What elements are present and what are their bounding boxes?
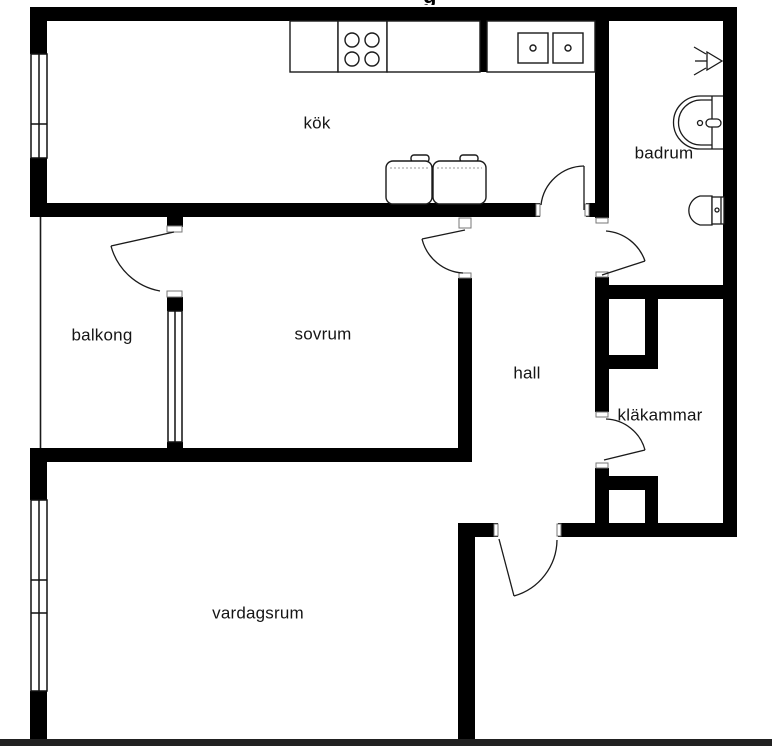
room-label-hall: hall — [513, 365, 540, 382]
wall-klakammar-left-upper — [595, 299, 609, 412]
kitchen-fixtures — [290, 21, 595, 204]
door-frames — [167, 204, 608, 536]
wall-vardagsrum-left-lower — [30, 691, 47, 740]
room-label-kok: kök — [303, 115, 330, 132]
kitchen-counter-cabinet — [290, 21, 338, 72]
bottom-edge-bar — [0, 739, 772, 746]
room-label-klakammar: kläkammar — [618, 407, 703, 424]
door-badrum — [602, 231, 645, 275]
wall-balkong-stub-mid — [167, 297, 183, 311]
bathroom-fixtures — [674, 47, 725, 225]
wall-hall-bottom — [558, 523, 737, 537]
wall-counter-separator — [480, 21, 487, 72]
wall-kok-bottom — [30, 203, 540, 217]
door-klakammar — [604, 419, 645, 460]
floorplan-drawing — [0, 0, 772, 746]
wall-badrum-left — [595, 7, 609, 218]
fridge-icon — [386, 155, 432, 204]
washbasin-icon — [674, 96, 724, 149]
wall-badrum-left-stub — [595, 277, 609, 285]
room-label-vardagsrum: vardagsrum — [212, 605, 304, 622]
room-label-balkong: balkong — [72, 327, 133, 344]
wall-alcove-top-horizontal — [609, 355, 658, 369]
wall-right-exterior — [723, 7, 737, 537]
walls — [30, 7, 737, 740]
freezer-icon — [433, 155, 486, 204]
door-kok — [541, 166, 584, 210]
window-balkong-sovrum — [168, 311, 182, 442]
door-balkong — [111, 232, 174, 291]
wall-sovrum-right — [458, 278, 472, 462]
room-label-badrum: badrum — [635, 145, 694, 162]
wall-alcove-bottom-horizontal — [609, 476, 658, 490]
wall-left-upper-a — [30, 7, 47, 54]
wall-top — [30, 7, 737, 21]
stove-four-burners-icon — [338, 21, 387, 72]
wall-badrum-bottom — [595, 285, 737, 299]
window-vardagsrum — [31, 500, 47, 691]
double-sink-icon — [487, 21, 595, 72]
door-sovrum — [422, 230, 465, 273]
shower-icon — [694, 47, 722, 75]
toilet-icon — [689, 196, 724, 225]
room-label-sovrum: sovrum — [295, 326, 352, 343]
door-vardagsrum — [499, 539, 557, 596]
wall-balkong-stub-bottom — [167, 442, 183, 448]
kitchen-counter-long — [387, 21, 480, 72]
window-kok — [31, 54, 47, 158]
windows — [31, 54, 182, 691]
wall-vardagsrum-left-upper — [30, 448, 47, 500]
wall-vardagsrum-right — [458, 523, 475, 740]
wall-sovrum-bottom — [30, 448, 472, 462]
floorplan-page: g — [0, 0, 772, 746]
